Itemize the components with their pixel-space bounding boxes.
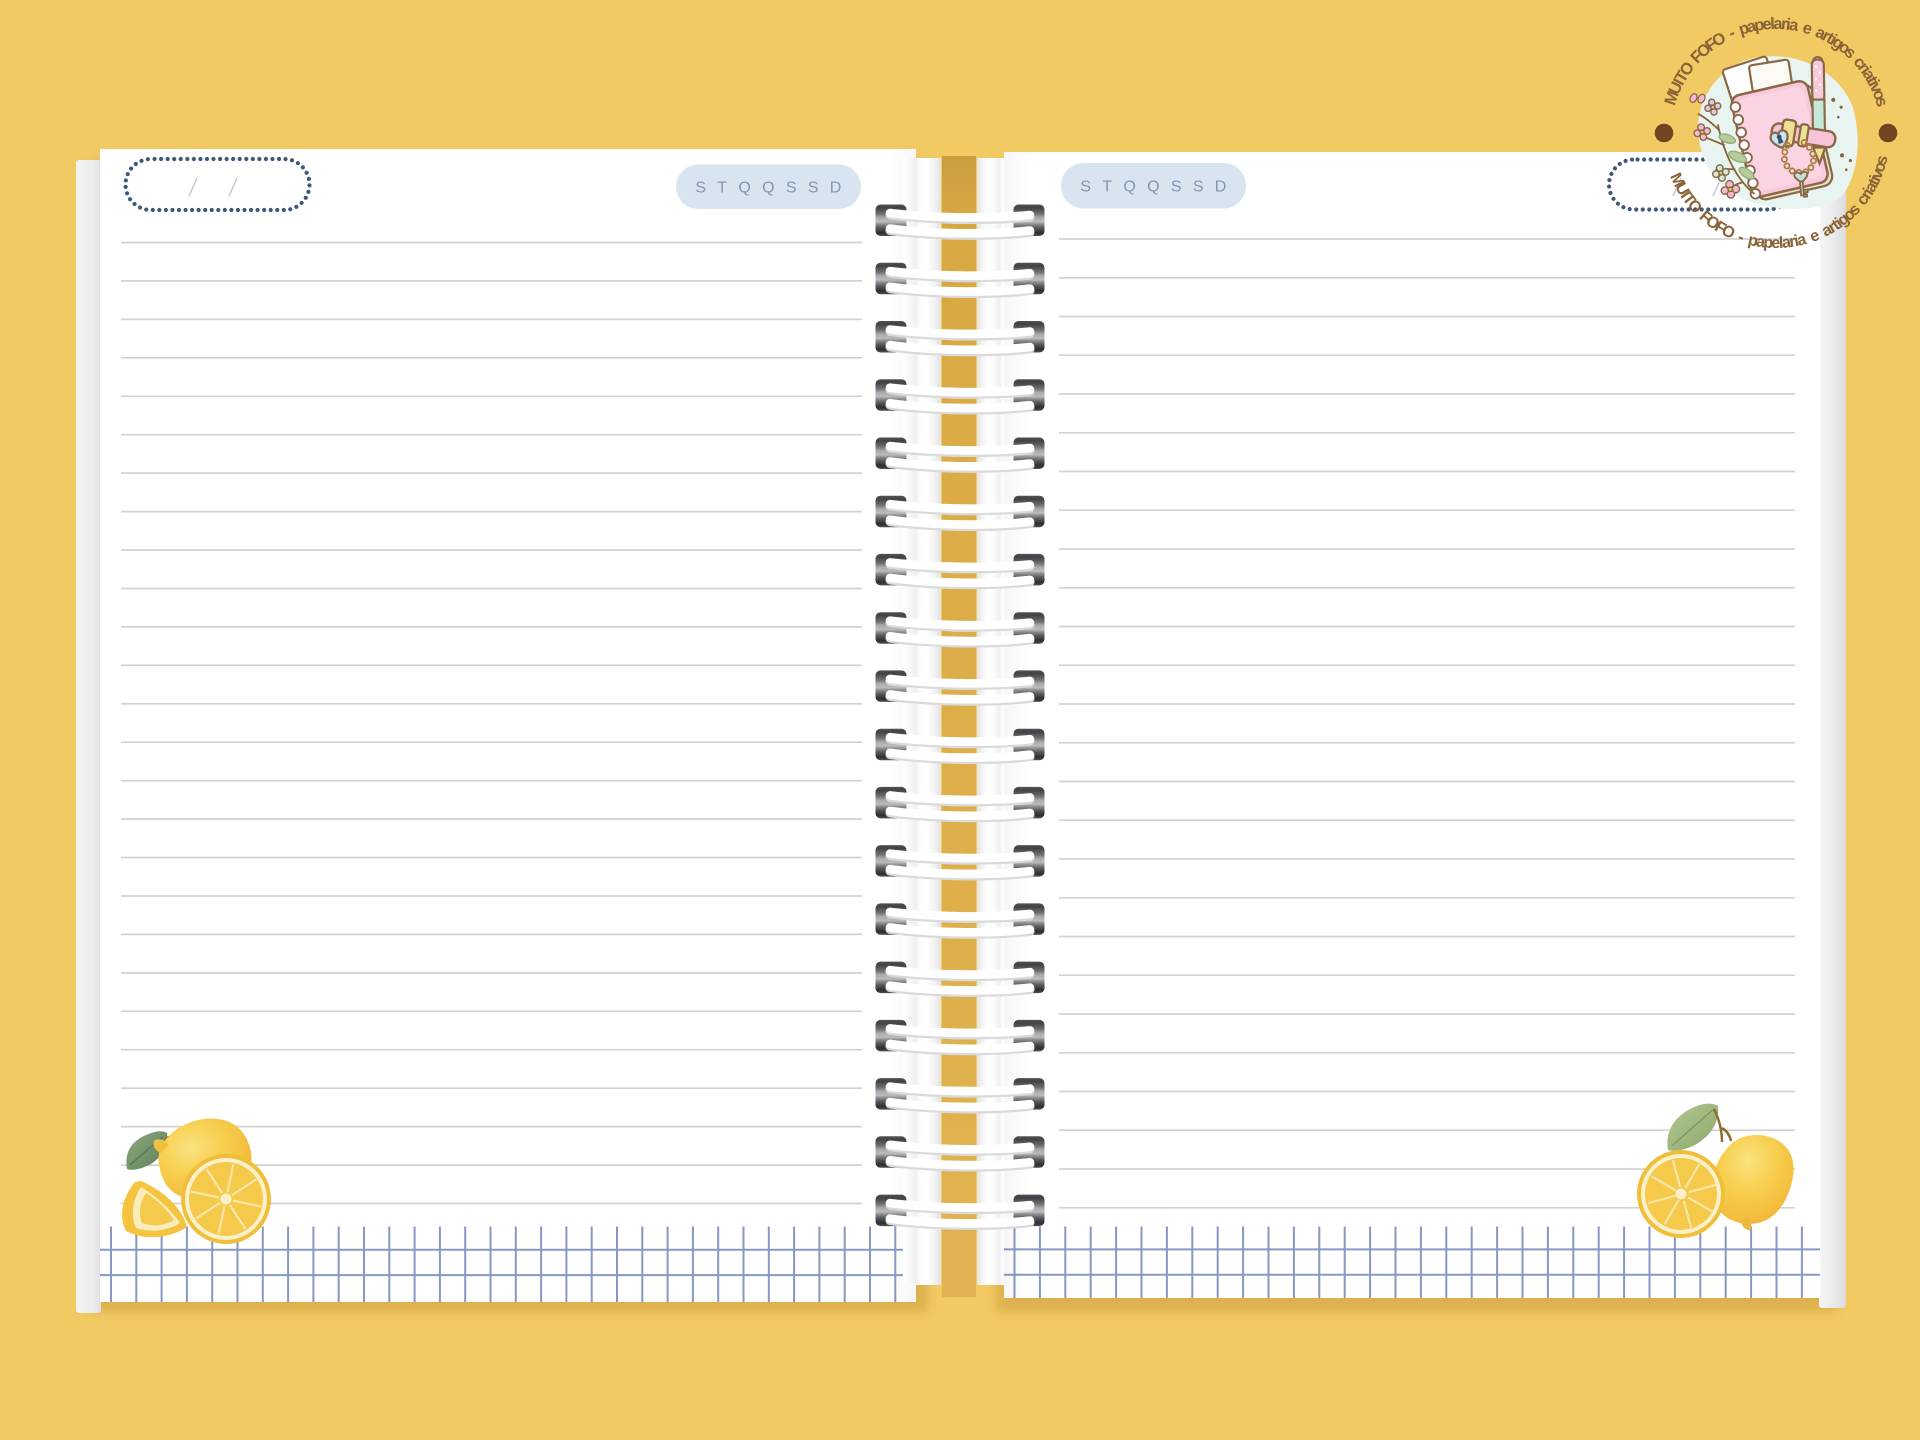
svg-text:STQQSSD: STQQSSD [695,180,852,197]
svg-text:STQQSSD: STQQSSD [1080,179,1237,196]
